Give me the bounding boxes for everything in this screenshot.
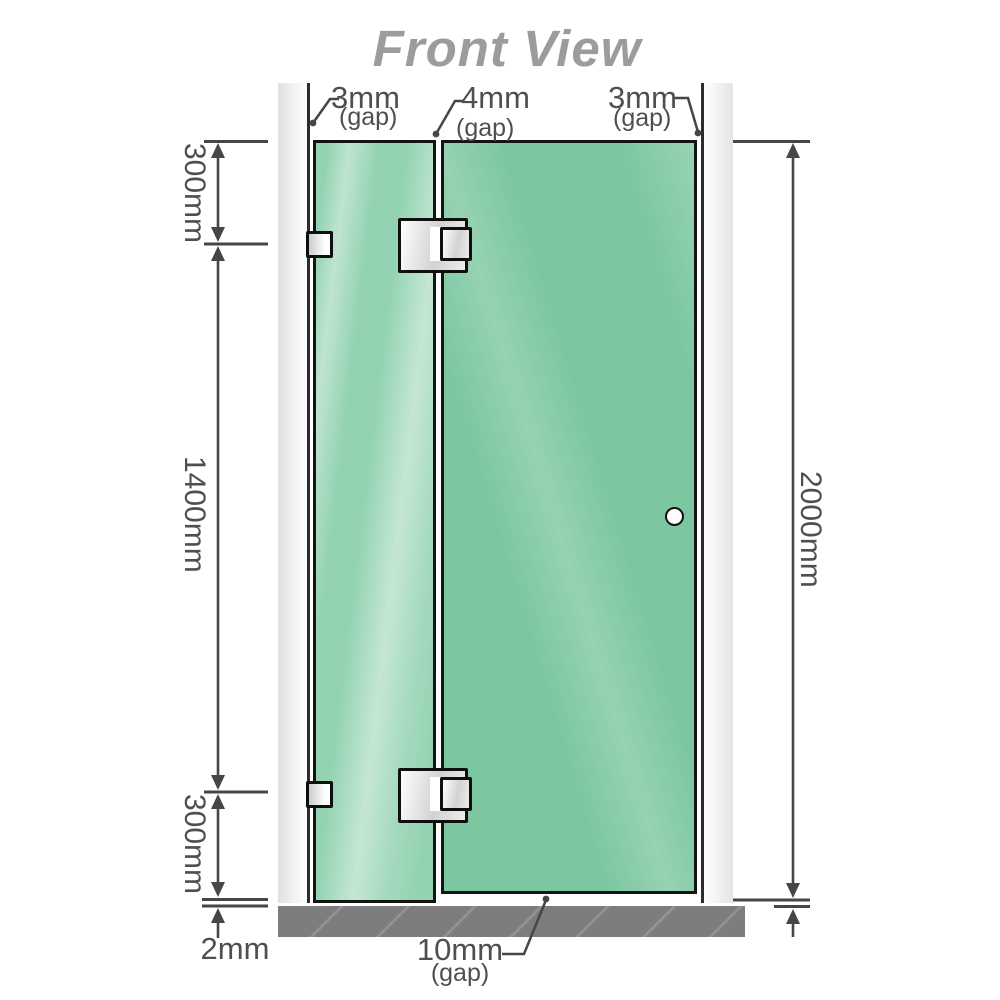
- dimension-arrowheads: [211, 143, 800, 924]
- gap-label-middle-value: 4mm: [461, 82, 530, 113]
- gap-label-middle-sub: (gap): [456, 116, 514, 141]
- extension-ticks: [202, 142, 810, 907]
- gap-label-right-sub: (gap): [613, 106, 671, 131]
- leader-lines: [313, 98, 698, 954]
- dim-label-bottom-gap-sub: (gap): [414, 961, 506, 986]
- leader-dots: [310, 120, 702, 903]
- dim-label-left-middle: 1400mm: [176, 396, 212, 632]
- dimension-lines: [218, 157, 793, 938]
- shower-screen-front-view-diagram: Front View: [0, 0, 1000, 1000]
- dim-label-floor-clearance: 2mm: [193, 933, 277, 964]
- dim-label-left-bottom: 300mm: [176, 790, 212, 898]
- dim-label-left-top: 300mm: [176, 141, 212, 245]
- dim-label-right-total: 2000mm: [792, 418, 828, 640]
- gap-label-left-sub: (gap): [339, 105, 397, 130]
- dimension-annotations: [0, 0, 1000, 1000]
